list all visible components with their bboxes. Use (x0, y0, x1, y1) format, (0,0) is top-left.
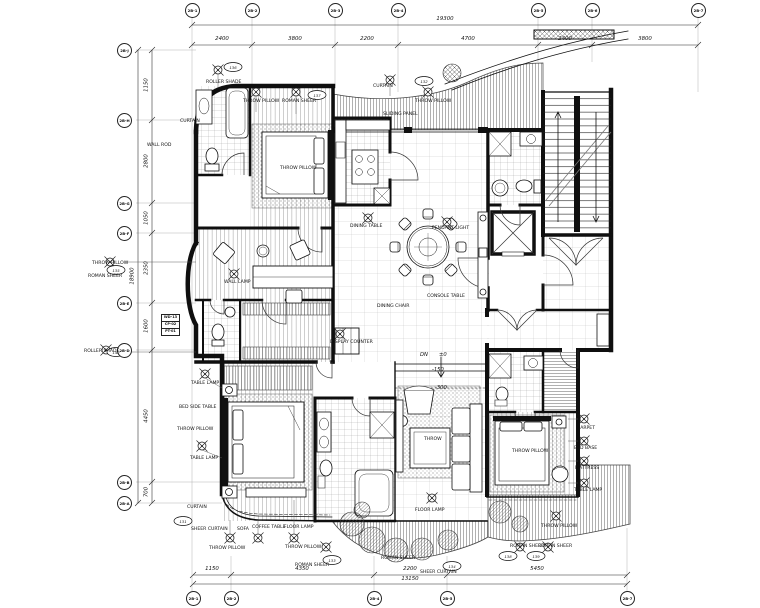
coffee-table (410, 428, 450, 468)
dimension-text: 1050 (144, 211, 149, 225)
annotation-label: THROW PILLOW (92, 261, 128, 266)
grid-bubble: 2B-5 (531, 3, 546, 18)
annotation-label: TABLE LAMP (190, 456, 218, 461)
dimension-text: 2200 (360, 37, 374, 42)
grid-bubble: 2B-5 (440, 591, 455, 606)
annotation-label: SHEER CURTAIN (191, 527, 228, 532)
dimension-text: 1600 (144, 319, 149, 333)
annotation-label: ROMAN SHEER (282, 99, 316, 104)
grid-bubble: 2B-G (117, 196, 132, 211)
level-marker-zero: ±0 (439, 353, 447, 358)
annotation-label: COFFEE TABLE (252, 525, 286, 530)
annotation-label: THROW PILLOW (209, 546, 245, 551)
annotation-label: DINING TABLE (350, 224, 382, 229)
annotation-label: SOFA (237, 527, 249, 532)
finish-tag: PT-01 (161, 328, 180, 336)
level-marker-dn: DN (420, 353, 428, 358)
grid-bubble: 2B-3 (328, 3, 343, 18)
grid-bubble: 2B-H (117, 113, 132, 128)
annotation-label: CURTAIN (180, 119, 200, 124)
dimension-text: 2800 (144, 154, 149, 168)
dimension-text: 1150 (144, 78, 149, 92)
annotation-label: WALL LAMP (224, 280, 251, 285)
callout-tag: 134 (443, 563, 461, 570)
annotation-label: ROMAN SHEER (88, 274, 122, 279)
annotation-label: CONSOLE TABLE (427, 294, 465, 299)
annotation-label: PENDANT LIGHT (432, 226, 469, 231)
callout-tag: 133 (323, 557, 341, 564)
annotation-label: CURTAIN (373, 84, 393, 89)
annotation-label: THROW PILLOW (285, 545, 321, 550)
annotation-label: THROW (424, 437, 442, 442)
armchair (404, 386, 434, 414)
tv-console (396, 400, 403, 472)
dimension-text: 4450 (144, 409, 149, 423)
level-marker-150: -150 (432, 368, 444, 373)
annotation-label: BED SIDE TABLE (179, 405, 216, 410)
console-table (478, 212, 488, 298)
annotation-label: SLIDING PANEL (383, 112, 418, 117)
annotation-label: ROMAN SHEER (538, 544, 572, 549)
dimension-text: 700 (144, 487, 149, 497)
callout-tag: 138 (499, 553, 517, 560)
grid-bubble: 2B-1 (185, 3, 200, 18)
annotation-label: THROW PILLOW (280, 166, 316, 171)
foyer-cabinet (597, 314, 609, 346)
callout-tag: 139 (527, 553, 545, 560)
annotation-label: THROW PILLOW (512, 449, 548, 454)
annotation-label: ROMAN SHEER (381, 556, 415, 561)
grid-bubble: 2B-7 (691, 3, 706, 18)
dimension-overall: 18900 (130, 267, 135, 284)
grid-bubble: 2B-2 (224, 591, 239, 606)
annotation-label: TABLE LAMP (574, 488, 602, 493)
sofa (452, 404, 482, 492)
annotation-label: BED BASE (574, 446, 597, 451)
callout-tag: 142 (107, 349, 125, 356)
dimension-text: 3800 (288, 37, 302, 42)
grid-bubble: 2B-B (117, 475, 132, 490)
dimension-text: 2400 (215, 37, 229, 42)
callout-tag: 136 (224, 64, 242, 71)
callout-tag: 137 (308, 92, 326, 99)
dimension-text: 2400 (558, 37, 572, 42)
dimension-text: 1150 (205, 567, 219, 572)
annotation-label: THROW PILLOW (541, 524, 577, 529)
callout-tag: 131 (174, 518, 192, 525)
annotation-label: SHEER CURTAIN (420, 570, 457, 575)
staircase (543, 96, 611, 232)
level-marker-300: -300 (435, 386, 447, 391)
grid-bubble: 2B-1 (186, 591, 201, 606)
annotation-label: FLOOR LAMP (415, 508, 444, 513)
annotation-label: DINING CHAIR (377, 304, 410, 309)
dimension-text: 2350 (144, 261, 149, 275)
annotation-label: WALL ROD (147, 143, 171, 148)
annotation-label: THROW PILLOW (415, 99, 451, 104)
bed-topleft (262, 130, 333, 200)
annotation-label: THROW PILLOW (177, 427, 213, 432)
floorplan-drawing: 2B-1 2B-2 2B-3 2B-4 2B-5 2B-6 2B-7 2400 … (0, 0, 760, 608)
elevator (492, 212, 534, 256)
annotation-label: CURTAIN (187, 505, 207, 510)
dimension-text: 2200 (403, 567, 417, 572)
grid-bubble: 2B-7 (620, 591, 635, 606)
annotation-label: TABLE LAMP (191, 381, 219, 386)
dimension-overall: 13150 (401, 577, 418, 582)
annotation-label: DISPLAY COUNTER (330, 340, 373, 345)
callout-tag: 132 (415, 78, 433, 85)
grid-bubble: 2B-6 (585, 3, 600, 18)
grid-bubble: 2B-4 (391, 3, 406, 18)
callout-tag: 135 (107, 267, 125, 274)
grid-bubble: 2B-F (117, 226, 132, 241)
dimension-overall: 19300 (436, 17, 453, 22)
annotation-label: MATTRESS (575, 466, 599, 471)
annotation-label: FLOOR LAMP (284, 525, 313, 530)
annotation-label: THROW PILLOW (243, 99, 279, 104)
grid-bubble: 2B-4 (367, 591, 382, 606)
dimension-text: 3800 (638, 37, 652, 42)
grid-bubble: 2B-A (117, 496, 132, 511)
dimension-text: 4700 (461, 37, 475, 42)
grid-bubble: 2B-J (117, 43, 132, 58)
grid-bubble: 2B-E (117, 296, 132, 311)
annotation-label: ROLLER SHADE (206, 80, 241, 85)
dimension-text: 5450 (530, 567, 544, 572)
annotation-label: CARPET (577, 426, 595, 431)
grid-bubble: 2B-2 (245, 3, 260, 18)
